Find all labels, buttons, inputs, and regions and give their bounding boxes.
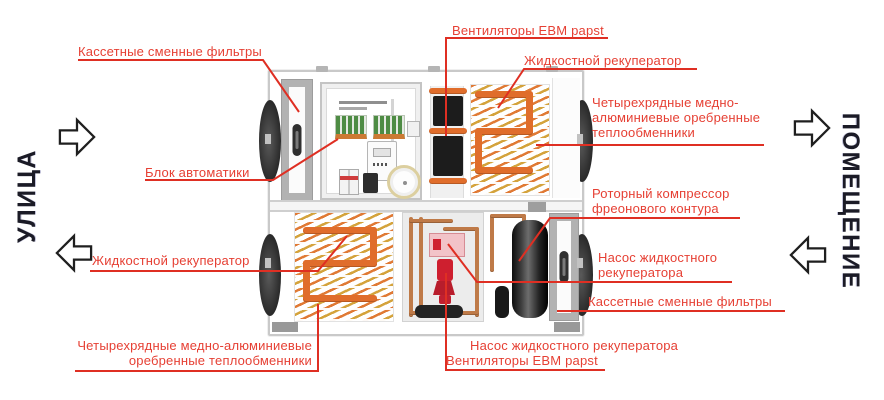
casing-tab xyxy=(428,66,440,72)
divider-bracket xyxy=(528,202,546,212)
copper-pipe xyxy=(419,217,423,317)
airflow-arrow-street-exhaust-icon xyxy=(55,232,93,274)
coil-pipe xyxy=(303,295,377,302)
automation-box xyxy=(320,82,422,200)
cassette-filter-bottom xyxy=(550,214,578,320)
casing-latch xyxy=(577,134,583,144)
annotation-line: Роторный компрессор xyxy=(592,186,730,201)
coil-pipe xyxy=(303,260,377,267)
controller-buttons xyxy=(373,163,389,166)
annotation-line: Четырехрядные медно- xyxy=(592,95,760,110)
automation-panel-face xyxy=(326,88,416,194)
annotation-recuperator-top: Жидкостной рекуператор xyxy=(524,53,682,68)
annotation-recuperator-left: Жидкостной рекуператор xyxy=(92,253,250,268)
annotation-heat-exchangers-right: Четырехрядные медно- алюминиевые оребрен… xyxy=(592,95,760,140)
filter-handle-icon xyxy=(560,251,569,283)
coil-pipe xyxy=(429,128,467,134)
annotation-line: оребренные теплообменники xyxy=(66,353,312,368)
coil-pipe xyxy=(475,91,533,98)
ahu-unit xyxy=(268,70,584,336)
blank-panel xyxy=(552,78,580,198)
filter-drier-cylinder xyxy=(415,305,463,318)
fan-section-top xyxy=(430,86,464,198)
annotation-fans-top: Вентиляторы EBM papst xyxy=(452,23,604,38)
bus-bar xyxy=(339,107,367,110)
terminal-block xyxy=(373,115,405,139)
receiver-cylinder xyxy=(495,286,509,318)
airflow-arrow-room-return-icon xyxy=(789,234,827,276)
fan-wheel xyxy=(433,136,463,176)
airflow-arrow-room-supply-icon xyxy=(793,107,831,149)
unit-foot xyxy=(554,322,580,332)
heat-exchanger-bottom xyxy=(294,212,394,322)
annotation-line: Четырехрядные медно-алюминиевые xyxy=(66,338,312,353)
coil-pipe xyxy=(475,128,533,135)
coil-pipe xyxy=(429,178,467,184)
annotation-filters-right: Кассетные сменные фильтры xyxy=(588,294,772,309)
coil-pipe xyxy=(429,88,467,94)
annotation-compressor: Роторный компрессор фреонового контура xyxy=(592,186,730,216)
heat-exchanger-top xyxy=(470,84,550,196)
airflow-arrow-street-supply-icon xyxy=(58,116,96,158)
annotation-heat-exchangers-bottom: Четырехрядные медно-алюминиевые оребренн… xyxy=(66,338,312,368)
speed-dial xyxy=(387,165,421,199)
copper-pipe xyxy=(490,214,526,218)
casing-latch xyxy=(577,258,583,268)
annotation-line: Насос жидкостного xyxy=(598,250,717,265)
pump-base xyxy=(439,295,451,304)
casing-tab xyxy=(316,66,328,72)
zone-label-street: УЛИЦА xyxy=(13,126,43,266)
zone-label-room: ПОМЕЩЕНИЕ xyxy=(834,95,864,307)
annotation-pump-right: Насос жидкостного рекуператора xyxy=(598,250,717,280)
copper-pipe xyxy=(490,214,494,272)
annotation-filters-top: Кассетные сменные фильтры xyxy=(78,44,262,59)
copper-pipe xyxy=(443,227,479,231)
casing-latch xyxy=(265,258,271,268)
pump-electronics-box xyxy=(429,233,465,257)
cassette-filter-top xyxy=(282,80,312,200)
copper-pipe xyxy=(475,227,479,317)
contactor-module xyxy=(363,173,378,193)
annotation-line: алюминиевые оребренные xyxy=(592,110,760,125)
annotation-line: фреонового контура xyxy=(592,201,730,216)
copper-pipe xyxy=(409,219,453,223)
terminal-block xyxy=(335,115,367,139)
filter-handle-icon xyxy=(293,124,302,156)
unit-foot xyxy=(272,322,298,332)
annotation-line: рекуператора xyxy=(598,265,717,280)
circuit-breakers xyxy=(339,169,359,195)
annotation-pump-bottom: Насос жидкостного рекуператора xyxy=(470,338,678,353)
annotation-automation: Блок автоматики xyxy=(145,165,250,180)
copper-pipe xyxy=(409,217,413,317)
recuperator-pump xyxy=(437,259,453,281)
annotation-line: теплообменники xyxy=(592,125,760,140)
casing-latch xyxy=(265,134,271,144)
controller-display xyxy=(373,148,391,157)
annotation-fans-bottom: Вентиляторы EBM papst xyxy=(446,353,598,368)
coil-pipe xyxy=(475,167,533,174)
rotary-compressor xyxy=(512,220,548,318)
diagram-canvas: УЛИЦА ПОМЕЩЕНИЕ xyxy=(0,0,884,400)
compressor-group xyxy=(490,212,548,322)
fan-wheel xyxy=(433,96,463,126)
pump-diffuser xyxy=(433,281,455,295)
pump-bay xyxy=(402,212,484,322)
coil-pipe xyxy=(303,227,377,234)
bus-bar xyxy=(339,101,387,104)
duct-flange-bottom-left xyxy=(259,234,281,316)
wiring-diagram-sticker xyxy=(407,121,420,137)
